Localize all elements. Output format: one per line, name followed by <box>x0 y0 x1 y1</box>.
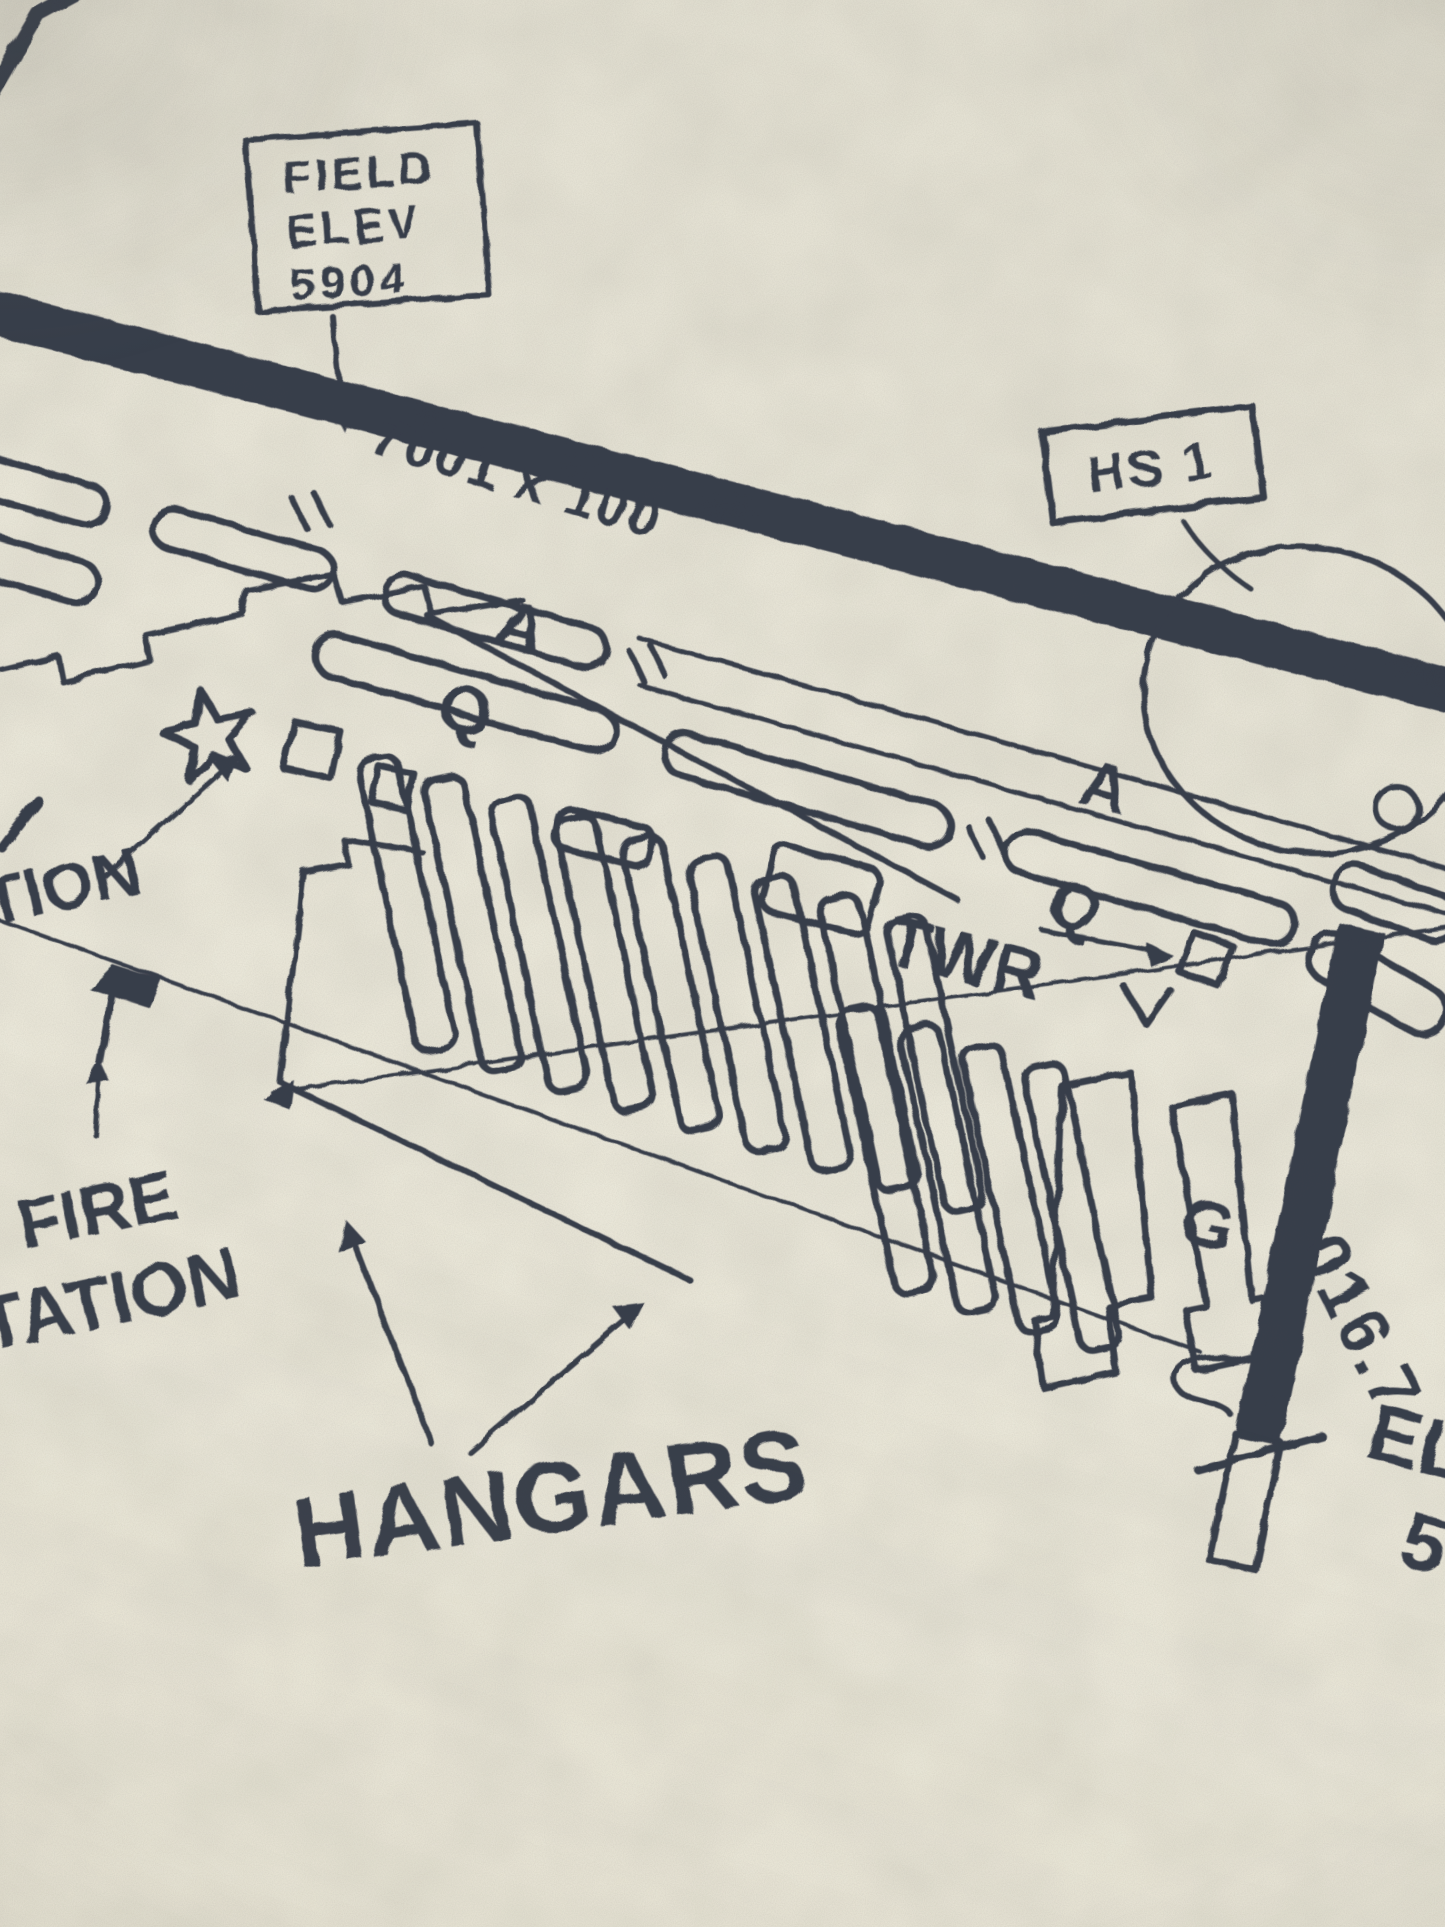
airport-diagram-canvas: 7001 x 100 FIELD ELEV 5904 HS 1 <box>0 0 1445 1927</box>
field-elev-line2: ELEV <box>285 196 424 257</box>
field-elev-line1: FIELD <box>281 141 437 204</box>
field-elev-line3: 5904 <box>288 251 410 311</box>
airport-diagram-photo: 7001 x 100 FIELD ELEV 5904 HS 1 <box>0 0 1445 1927</box>
